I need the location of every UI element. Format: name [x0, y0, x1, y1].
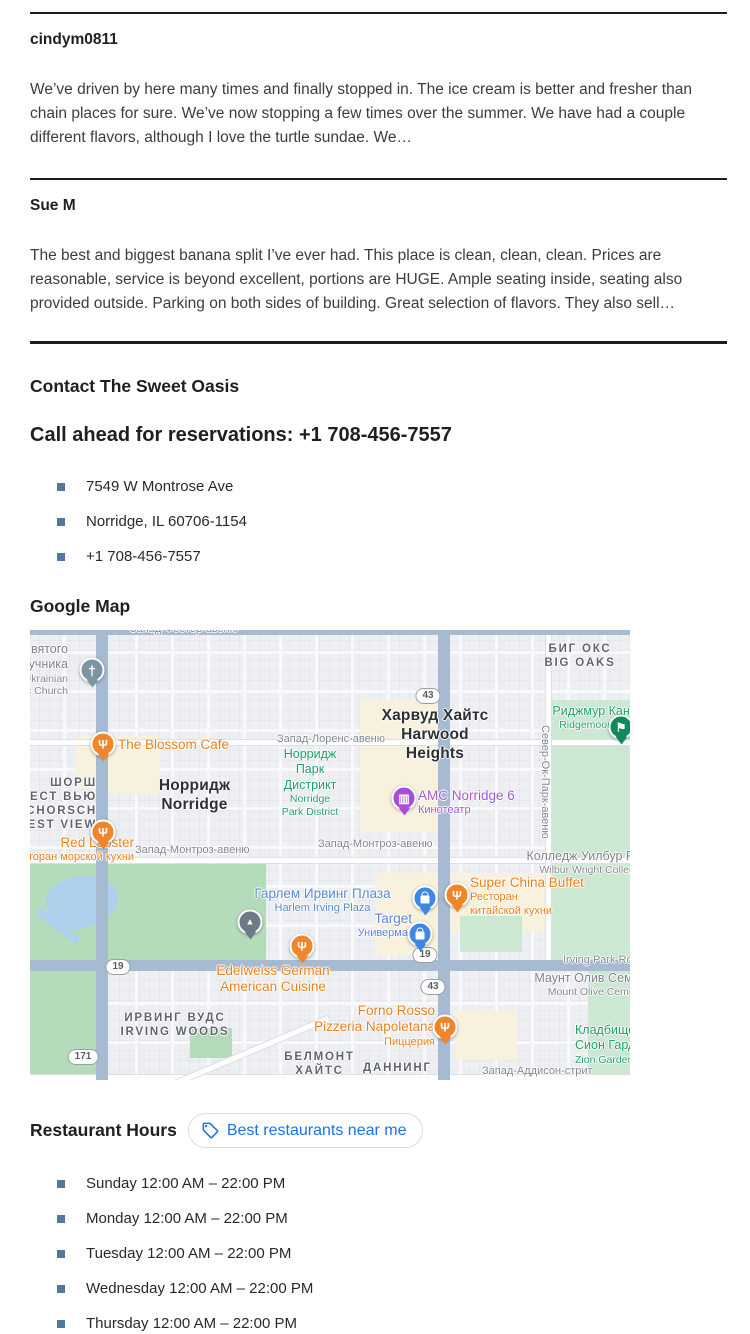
route-shield-43: 43	[415, 688, 440, 704]
call-ahead-heading: Call ahead for reservations: +1 708-456-…	[30, 424, 727, 447]
chip-label: Best restaurants near me	[227, 1122, 407, 1140]
map-label: Север-Ок-Парк-авеню	[538, 725, 551, 839]
divider	[30, 12, 727, 14]
restaurant-icon: Ψ	[440, 1021, 450, 1033]
best-restaurants-chip[interactable]: Best restaurants near me	[188, 1113, 424, 1148]
list-item: Norridge, IL 60706-1154	[30, 512, 727, 532]
review-text: We’ve driven by here many times and fina…	[30, 78, 727, 150]
map-label: Запад-Аддисон-стрит	[482, 1065, 593, 1078]
section-divider	[30, 341, 727, 344]
map-label: Red LobsterРесторан морской кухни	[30, 835, 134, 865]
route-shield-43: 43	[420, 979, 445, 995]
map-label: ДАННИНГ	[363, 1061, 428, 1075]
google-map-heading: Google Map	[30, 596, 727, 617]
monument-pin[interactable]: ▲	[238, 910, 263, 935]
restaurant-pin[interactable]: Ψ	[91, 732, 116, 757]
page: cindym0811 We’ve driven by here many tim…	[0, 12, 750, 1334]
restaurant-hours-heading: Restaurant Hours	[30, 1120, 177, 1141]
list-item: Tuesday 12:00 AM – 22:00 PM	[30, 1244, 727, 1264]
map-label: Запад-Фостер-авеню	[130, 630, 238, 636]
shopping-icon	[416, 932, 425, 940]
route-shield-19: 19	[105, 959, 130, 975]
map-label: AMC Norridge 6Кинотеатр	[418, 788, 515, 818]
list-item: Thursday 12:00 AM – 22:00 PM	[30, 1314, 727, 1334]
map-label: НорриджПаркДистриктNorridgePark District	[255, 747, 365, 818]
movie-pin[interactable]: ▥	[392, 786, 417, 811]
map-label: The Blossom Cafe	[118, 737, 229, 753]
restaurant-icon: Ψ	[98, 738, 108, 750]
map-label: Маунт Олив СеметериMount Olive Cemetery	[525, 971, 630, 999]
restaurant-icon: Ψ	[98, 826, 108, 838]
shopping-pin[interactable]	[413, 886, 438, 911]
review-author: Sue M	[30, 197, 727, 215]
map-label: Запад-Монтроз-авеню	[318, 838, 433, 851]
map-label: БЕЛМОНТХАЙТС	[282, 1050, 357, 1078]
map-label: НорриджNorridge	[142, 777, 247, 815]
list-item: Monday 12:00 AM – 22:00 PM	[30, 1209, 727, 1229]
church-icon: †	[88, 663, 96, 677]
restaurant-pin[interactable]: Ψ	[290, 934, 315, 959]
shopping-pin[interactable]	[408, 922, 433, 947]
map-label: TargetУнивермаг	[312, 911, 412, 941]
map-label: Forno RossoPizzeria NapoletanaПиццерия	[308, 1003, 435, 1049]
golf-pin[interactable]: ⚑	[609, 715, 631, 740]
monument-icon: ▲	[246, 918, 255, 927]
main-road	[30, 630, 630, 635]
map-park-area	[460, 916, 522, 952]
google-map[interactable]: Запад-Фостер-авенюСвятогоОбручникаUkrain…	[30, 630, 630, 1080]
tag-icon	[201, 1121, 220, 1140]
restaurant-icon: Ψ	[297, 940, 307, 952]
map-label: ШОРШФОРЕСТ ВЬЮSCHORSCHFOREST VIEW	[30, 776, 97, 832]
map-label: Super China BuffetРесторанкитайской кухн…	[470, 875, 584, 918]
restaurant-pin[interactable]: Ψ	[91, 820, 116, 845]
map-label: СвятогоОбручникаUkrainianCatholic Church	[30, 642, 68, 698]
map-commercial-area	[455, 1010, 517, 1060]
map-label: КладбищеСион ГарденсZion Gardens Cemeter…	[575, 1023, 630, 1066]
contact-heading: Contact The Sweet Oasis	[30, 376, 727, 397]
route-shield-171: 171	[68, 1049, 99, 1065]
review-author: cindym0811	[30, 31, 727, 49]
restaurant-pin[interactable]: Ψ	[445, 883, 470, 908]
movie-icon: ▥	[398, 792, 409, 804]
hours-list: Sunday 12:00 AM – 22:00 PMMonday 12:00 A…	[30, 1174, 727, 1334]
map-label: Колледж Уилбур РайтWilbur Wright College	[490, 849, 630, 877]
map-label: ИРВИНГ ВУДСIRVING WOODS	[115, 1011, 235, 1039]
map-label: Запад-Лоренс-авеню	[277, 733, 385, 746]
map-label: Запад-Монтроз-авеню	[135, 844, 250, 857]
review-text: The best and biggest banana split I’ve e…	[30, 244, 727, 316]
list-item: Wednesday 12:00 AM – 22:00 PM	[30, 1279, 727, 1299]
map-label: Irving Park Rd	[563, 954, 630, 967]
map-label: Edelweiss GermanAmerican Cuisine	[208, 963, 338, 996]
restaurant-icon: Ψ	[452, 889, 462, 901]
list-item: Sunday 12:00 AM – 22:00 PM	[30, 1174, 727, 1194]
church-pin[interactable]: †	[80, 658, 105, 683]
map-label: БИГ ОКСBIG OAKS	[525, 642, 630, 670]
list-item: +1 708-456-7557	[30, 547, 727, 567]
contact-list: 7549 W Montrose AveNorridge, IL 60706-11…	[30, 477, 727, 567]
divider	[30, 178, 727, 180]
restaurant-pin[interactable]: Ψ	[433, 1015, 458, 1040]
golf-icon: ⚑	[616, 721, 627, 733]
list-item: 7549 W Montrose Ave	[30, 477, 727, 497]
shopping-icon	[421, 896, 430, 904]
